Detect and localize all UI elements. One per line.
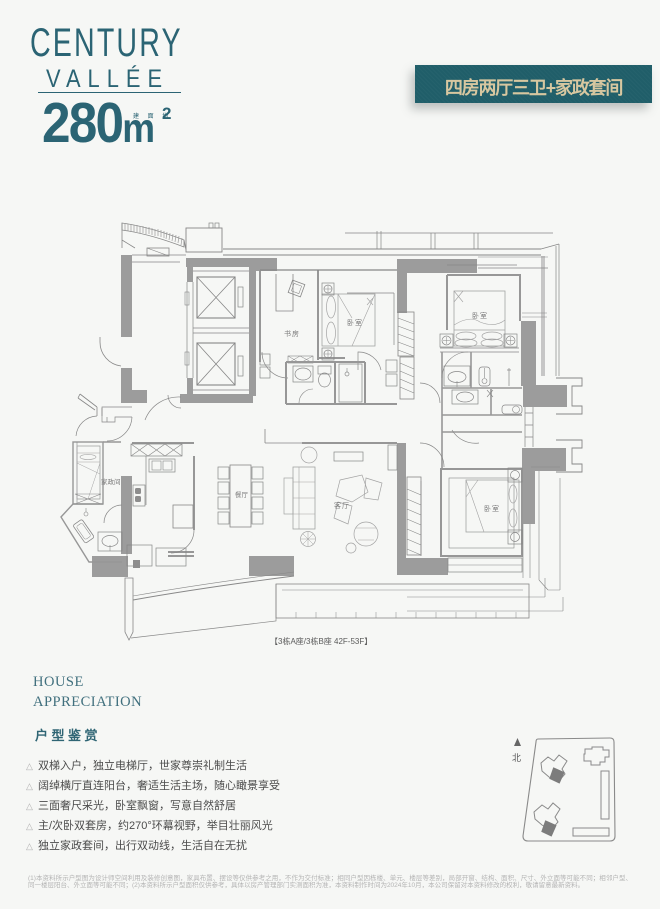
svg-text:餐厅: 餐厅 xyxy=(235,490,249,499)
svg-text:家政间: 家政间 xyxy=(101,477,121,486)
svg-text:书房: 书房 xyxy=(284,329,300,338)
svg-text:北: 北 xyxy=(512,753,521,763)
svg-text:卧室: 卧室 xyxy=(347,318,363,327)
svg-text:卧室: 卧室 xyxy=(484,504,500,513)
svg-text:卧室: 卧室 xyxy=(472,311,488,320)
svg-text:客厅: 客厅 xyxy=(334,501,350,510)
